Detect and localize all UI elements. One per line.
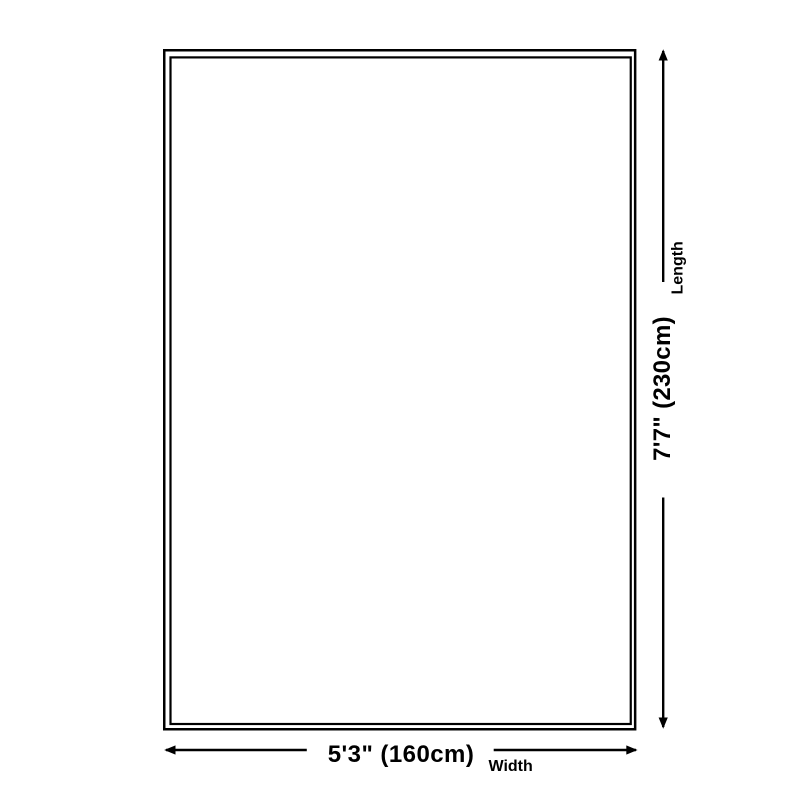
svg-text:7'7" (230cm): 7'7" (230cm): [649, 316, 676, 461]
svg-text:Width: Width: [489, 758, 533, 775]
svg-text:Length: Length: [670, 241, 687, 294]
svg-text:5'3" (160cm): 5'3" (160cm): [328, 741, 475, 768]
